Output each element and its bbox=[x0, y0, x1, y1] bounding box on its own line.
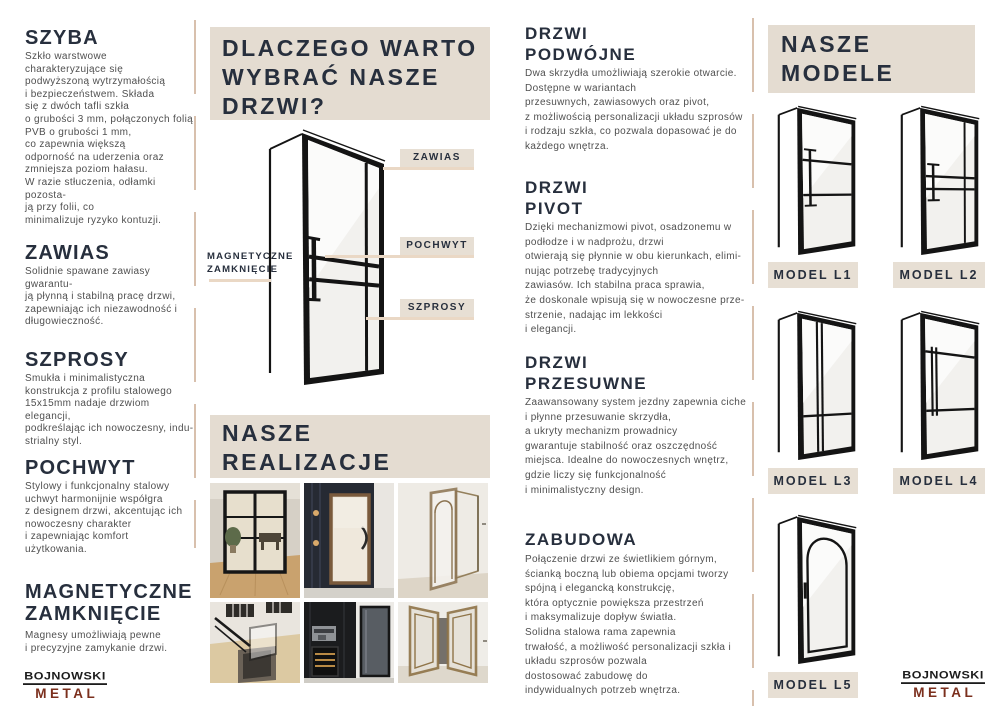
modele-heading: NASZE MODELE bbox=[781, 30, 971, 88]
section-body-drzwi-przesuwne: Zaawansowany system jezdny zapewnia cich… bbox=[525, 396, 750, 498]
pochwyt-connector-line bbox=[325, 255, 474, 258]
column-divider-left bbox=[194, 20, 196, 548]
section-title-zawias: ZAWIAS bbox=[25, 242, 190, 264]
model-door-l1-illustration bbox=[772, 103, 864, 258]
column-divider-right bbox=[752, 18, 754, 706]
realization-photo-cabinet bbox=[304, 602, 394, 683]
zawias-connector-line bbox=[383, 167, 474, 170]
section-title-drzwi-podwojne: DRZWI PODWÓJNE bbox=[525, 23, 747, 65]
section-body-magnetyczne: Magnesy umożliwiają pewne i precyzyjne z… bbox=[25, 630, 195, 655]
realization-photo-staircase bbox=[210, 602, 300, 683]
model-label-l3: MODEL L3 bbox=[768, 468, 858, 494]
brand-logo-left: BOJNOWSKI METAL bbox=[23, 668, 107, 701]
diagram-label-zawias: ZAWIAS bbox=[400, 149, 474, 167]
magnetyczne-connector-line bbox=[209, 279, 271, 282]
section-body-zabudowa: Połączenie drzwi ze świetlikiem górnym, … bbox=[525, 553, 750, 699]
szprosy-connector-line bbox=[366, 317, 474, 320]
section-body-drzwi-podwojne: Dwa skrzydła umożliwiają szerokie otwarc… bbox=[525, 67, 750, 155]
model-door-l2-illustration bbox=[895, 103, 987, 258]
diagram-label-szprosy: SZPROSY bbox=[400, 299, 474, 317]
section-title-drzwi-przesuwne: DRZWI PRZESUWNE bbox=[525, 352, 747, 394]
section-title-magnetyczne: MAGNETYCZNE ZAMKNIĘCIE bbox=[25, 581, 200, 625]
left-feature-column: SZYBA Szkło warstwowe charakteryzujące s… bbox=[0, 0, 200, 726]
section-body-pochwyt: Stylowy i funkcjonalny stalowy uchwyt ha… bbox=[25, 481, 195, 557]
realization-photo-dining-doors bbox=[210, 483, 300, 598]
model-door-l5-illustration bbox=[772, 512, 864, 667]
section-title-pochwyt: POCHWYT bbox=[25, 457, 190, 479]
section-body-szprosy: Smukła i minimalistyczna konstrukcja z p… bbox=[25, 373, 195, 449]
diagram-label-magnetyczne: MAGNETYCZNE ZAMKNIĘCIE bbox=[207, 250, 297, 276]
model-door-l4-illustration bbox=[895, 308, 987, 463]
diagram-label-pochwyt: POCHWYT bbox=[400, 237, 474, 255]
section-body-szyba: Szkło warstwowe charakteryzujące się pod… bbox=[25, 51, 195, 227]
brand-logo-name: BOJNOWSKI bbox=[901, 669, 985, 684]
brand-logo-right: BOJNOWSKI METAL bbox=[901, 667, 985, 700]
realizacje-heading: NASZE REALIZACJE bbox=[222, 419, 482, 477]
model-label-l2: MODEL L2 bbox=[893, 262, 985, 288]
section-body-zawias: Solidnie spawane zawiasy gwarantu- ją pł… bbox=[25, 266, 195, 329]
section-title-zabudowa: ZABUDOWA bbox=[525, 529, 747, 550]
realization-photo-frosted-door bbox=[304, 483, 394, 598]
brand-logo-sub: METAL bbox=[23, 686, 107, 701]
realization-photo-double-doors bbox=[398, 602, 488, 683]
model-label-l5: MODEL L5 bbox=[768, 672, 858, 698]
door-brochure-page: SZYBA Szkło warstwowe charakteryzujące s… bbox=[0, 0, 1000, 726]
section-title-szyba: SZYBA bbox=[25, 27, 190, 49]
section-title-szprosy: SZPROSY bbox=[25, 349, 190, 371]
section-title-drzwi-pivot: DRZWI PIVOT bbox=[525, 177, 747, 219]
model-door-l3-illustration bbox=[772, 308, 864, 463]
model-label-l1: MODEL L1 bbox=[768, 262, 858, 288]
brand-logo-name: BOJNOWSKI bbox=[23, 670, 107, 685]
why-heading: DLACZEGO WARTO WYBRAĆ NASZE DRZWI? bbox=[222, 34, 482, 121]
realization-photo-bronze-door bbox=[398, 483, 488, 598]
section-body-drzwi-pivot: Dzięki mechanizmowi pivot, osadzonemu w … bbox=[525, 221, 750, 338]
model-label-l4: MODEL L4 bbox=[893, 468, 985, 494]
brand-logo-sub: METAL bbox=[901, 685, 985, 700]
